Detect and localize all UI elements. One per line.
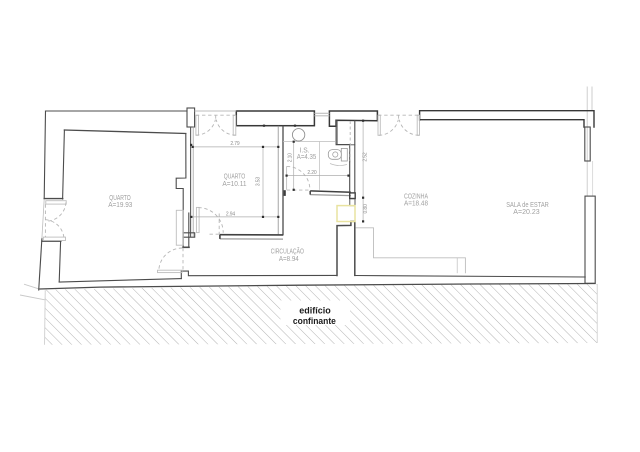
svg-text:A=19.93: A=19.93 [108,202,132,209]
svg-text:2.52: 2.52 [363,152,369,162]
svg-text:3.53: 3.53 [255,177,261,187]
svg-text:2.94: 2.94 [226,211,236,217]
svg-text:CIRCULAÇÃO: CIRCULAÇÃO [271,247,305,256]
svg-text:SALA de ESTAR: SALA de ESTAR [506,202,549,209]
svg-text:A=18.48: A=18.48 [404,201,428,208]
svg-text:2.10: 2.10 [288,153,294,163]
svg-text:confinante: confinante [293,316,336,327]
svg-text:2.20: 2.20 [307,170,317,176]
svg-text:A=20.23: A=20.23 [513,209,540,216]
svg-text:A=10.11: A=10.11 [222,181,246,188]
svg-text:A=4.35: A=4.35 [297,154,317,161]
svg-text:0.80: 0.80 [363,204,369,214]
svg-text:A=8.94: A=8.94 [279,256,299,263]
svg-text:QUARTO: QUARTO [224,174,246,181]
svg-text:edifício: edifício [299,306,331,317]
svg-text:QUARTO: QUARTO [109,195,131,202]
svg-text:2.79: 2.79 [230,141,240,147]
svg-text:COZINHA: COZINHA [404,194,428,201]
